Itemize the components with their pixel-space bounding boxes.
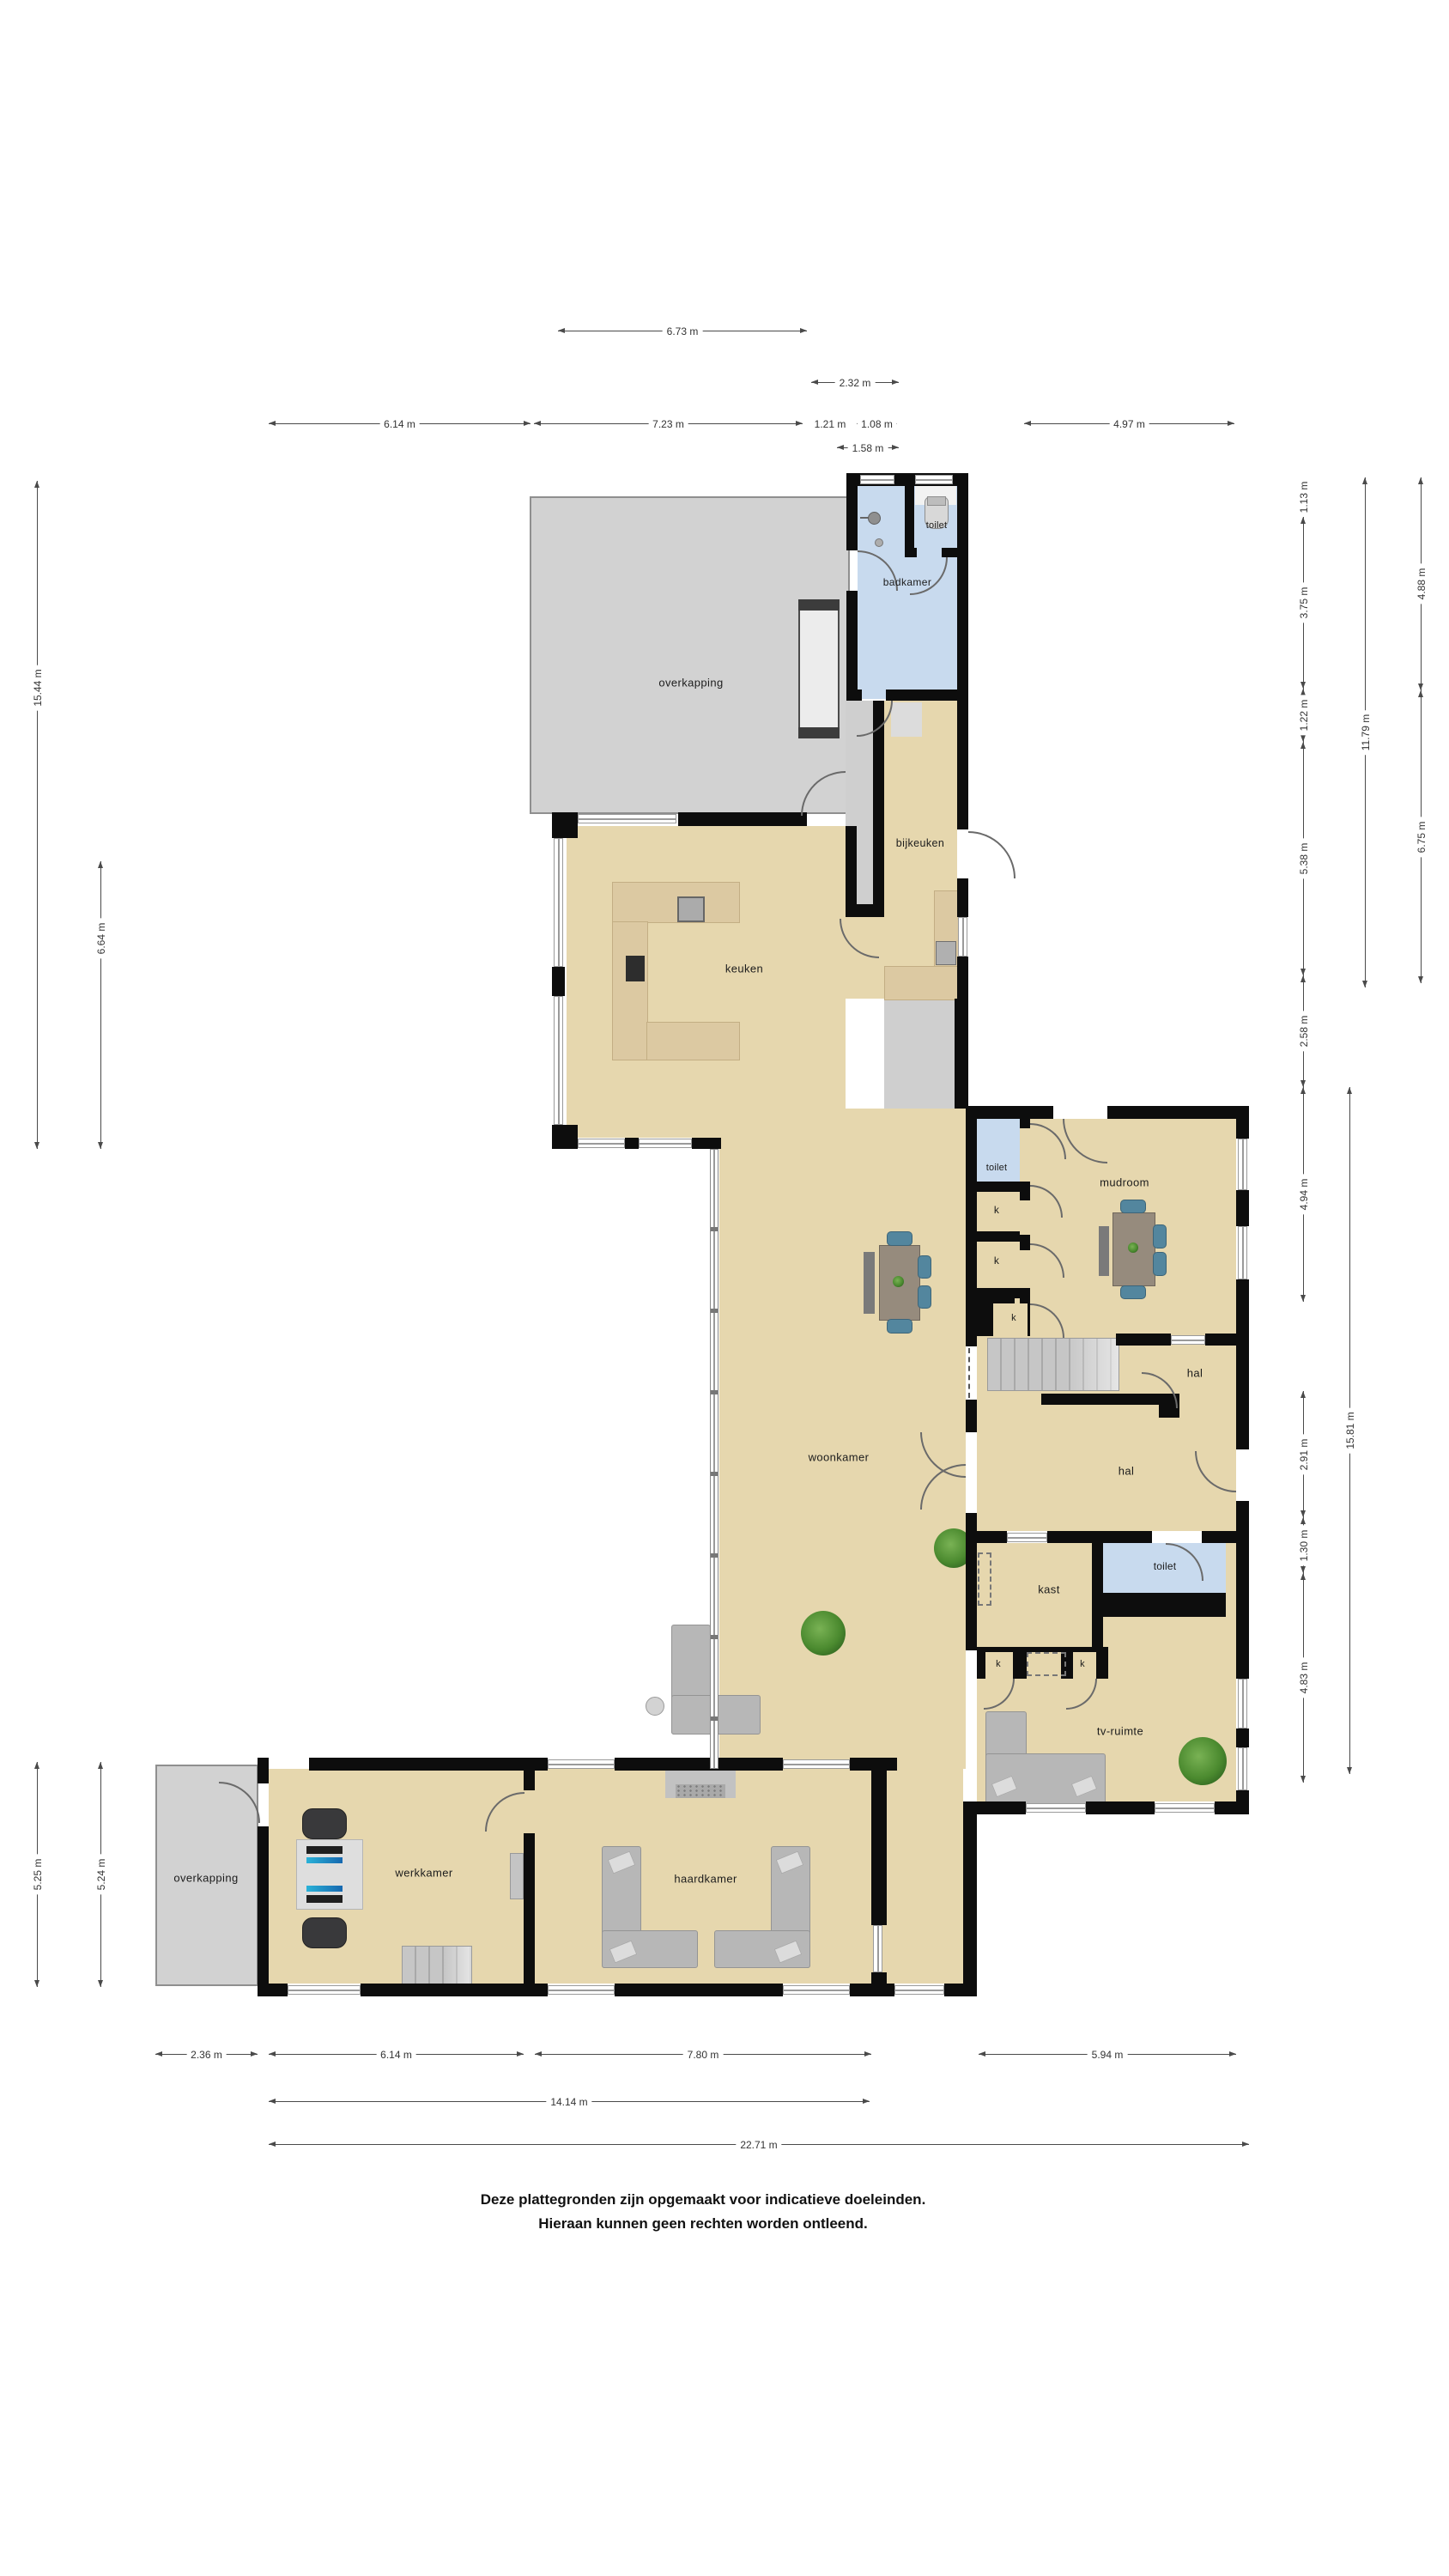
room-label-tv-ruimte: tv-ruimte	[1097, 1725, 1143, 1738]
dim-right-113: 1.13 m	[1303, 477, 1304, 517]
window	[548, 1985, 615, 1995]
window	[1171, 1335, 1205, 1345]
gray-block-east-of-kitchen	[884, 999, 955, 1109]
kitchen-living-bridge	[846, 1109, 966, 1143]
window	[554, 838, 563, 967]
dim-right-494: 4.94 m	[1303, 1087, 1304, 1302]
dim-bottom-236: 2.36 m	[155, 2054, 258, 2055]
room-label-woonkamer: woonkamer	[809, 1451, 870, 1464]
dim-bottom-780: 7.80 m	[535, 2054, 871, 2055]
window	[915, 475, 953, 484]
dining-chair	[918, 1285, 931, 1309]
room-label-werkkamer: werkkamer	[395, 1867, 452, 1880]
kitchen-sink	[677, 896, 705, 922]
toilet-fixture-top-tank	[927, 496, 946, 506]
table-plant	[893, 1276, 904, 1287]
side-table	[646, 1697, 664, 1716]
dining-bench	[864, 1252, 875, 1314]
kitchen-counter-left	[612, 921, 648, 1060]
closet-label: k	[994, 1255, 999, 1267]
disclaimer-line-1: Deze plattegronden zijn opgemaakt voor i…	[347, 2188, 1059, 2212]
dining-chair	[887, 1319, 912, 1334]
window	[873, 1925, 882, 1972]
closet-label: k	[996, 1659, 1001, 1669]
dim-top-723: 7.23 m	[534, 423, 803, 424]
terrace-table-end	[798, 727, 840, 738]
window	[639, 1139, 692, 1148]
glass-wall	[710, 1149, 718, 1769]
tvroom-plant	[1179, 1737, 1227, 1785]
door-arc	[968, 831, 1016, 878]
room-label-mudroom: mudroom	[1100, 1176, 1149, 1189]
window	[288, 1985, 361, 1995]
dim-right-488: 4.88 m	[1421, 477, 1422, 690]
window	[860, 475, 894, 484]
monitor	[306, 1895, 343, 1903]
mudroom-bench	[1099, 1226, 1109, 1276]
dim-right-483: 4.83 m	[1303, 1573, 1304, 1783]
room-label-toilet-top: toilet	[926, 520, 947, 531]
dim-right-122: 1.22 m	[1303, 689, 1304, 742]
dining-chair	[918, 1255, 931, 1279]
room-label-badkamer: badkamer	[883, 576, 932, 588]
shower-head	[868, 512, 881, 525]
terrace-table	[798, 599, 840, 738]
room-label-toilet-mid: toilet	[986, 1163, 1007, 1173]
scullery-counter-bottom	[884, 966, 959, 1000]
window	[1155, 1803, 1215, 1813]
mudroom-chair	[1153, 1252, 1167, 1276]
room-label-hal-upper: hal	[1187, 1367, 1203, 1380]
mudroom-chair	[1153, 1224, 1167, 1249]
kitchen-counter-bottom	[646, 1022, 740, 1060]
desk-chair	[302, 1917, 347, 1948]
floorplan-page: 6.73 m 2.32 m 6.14 m 7.23 m 1.21 m 1.08 …	[0, 0, 1449, 2576]
kitchen-fill	[567, 826, 846, 1138]
window	[578, 814, 676, 823]
dim-top-673: 6.73 m	[558, 331, 807, 331]
dim-right-291: 2.91 m	[1303, 1391, 1304, 1517]
dim-top-232: 2.32 m	[811, 382, 899, 383]
scullery-cabinet	[891, 702, 922, 737]
mudroom-table-plant	[1128, 1242, 1138, 1253]
monitor-screen	[306, 1886, 343, 1892]
dim-bottom-594: 5.94 m	[979, 2054, 1236, 2055]
room-label-toilet-down: toilet	[1154, 1560, 1177, 1572]
toilet-mid-fill	[977, 1119, 1020, 1189]
dim-right-130: 1.30 m	[1303, 1517, 1304, 1573]
dashed-opening	[968, 1348, 970, 1398]
dim-top-121: 1.21 m	[810, 423, 850, 424]
dim-left-525: 5.25 m	[37, 1762, 38, 1987]
dim-right-1179: 11.79 m	[1365, 477, 1366, 987]
window	[958, 917, 967, 957]
study-shelf	[510, 1853, 524, 1899]
room-label-bijkeuken: bijkeuken	[896, 837, 944, 849]
dim-left-524: 5.24 m	[100, 1762, 101, 1987]
dashed-wardrobe	[978, 1552, 991, 1606]
shower-knob	[875, 538, 883, 547]
room-label-overkapping-top: overkapping	[658, 677, 723, 690]
dashed-closet	[1027, 1652, 1066, 1676]
window	[1238, 1679, 1247, 1728]
dim-top-158: 1.58 m	[837, 447, 899, 448]
mudroom-chair	[1120, 1200, 1146, 1213]
scullery-sink	[936, 941, 956, 965]
window	[554, 996, 563, 1125]
dim-bottom-1414: 14.14 m	[269, 2101, 870, 2102]
window	[1238, 1747, 1247, 1790]
monitor	[306, 1846, 343, 1854]
kitchen-counter-top	[612, 882, 740, 923]
room-label-haardkamer: haardkamer	[674, 1873, 737, 1886]
monitor-screen	[306, 1857, 343, 1863]
room-label-keuken: keuken	[725, 963, 763, 975]
dim-right-375: 3.75 m	[1303, 517, 1304, 689]
disclaimer-text: Deze plattegronden zijn opgemaakt voor i…	[347, 2188, 1059, 2236]
closet-label: k	[1080, 1659, 1085, 1669]
room-label-hal: hal	[1119, 1465, 1135, 1478]
terrace-table-end	[798, 599, 840, 611]
window	[783, 1759, 850, 1769]
closet-label: k	[1011, 1313, 1016, 1323]
study-stairs	[402, 1946, 472, 1987]
dim-left-1544: 15.44 m	[37, 481, 38, 1149]
fireplace-hearth	[676, 1784, 725, 1798]
window	[1026, 1803, 1086, 1813]
dining-chair	[887, 1231, 912, 1246]
kitchen-cooktop	[626, 956, 645, 981]
dim-top-108: 1.08 m	[857, 423, 897, 424]
dim-right-1581: 15.81 m	[1349, 1087, 1350, 1774]
window	[783, 1985, 850, 1995]
hall-stairs	[987, 1338, 1119, 1391]
dim-left-664: 6.64 m	[100, 861, 101, 1149]
window	[578, 1139, 625, 1148]
room-label-overkapping-bottom: overkapping	[173, 1872, 238, 1885]
dim-top-497: 4.97 m	[1024, 423, 1234, 424]
dim-right-538: 5.38 m	[1303, 742, 1304, 975]
window	[1238, 1226, 1247, 1279]
desk-chair	[302, 1808, 347, 1839]
closet-label: k	[994, 1204, 999, 1216]
window	[1007, 1533, 1047, 1542]
livingroom-plant	[801, 1611, 846, 1656]
dim-bottom-614: 6.14 m	[269, 2054, 524, 2055]
disclaimer-line-2: Hieraan kunnen geen rechten worden ontle…	[347, 2212, 1059, 2236]
dim-right-675: 6.75 m	[1421, 690, 1422, 983]
mudroom-chair	[1120, 1285, 1146, 1299]
room-label-kast: kast	[1038, 1583, 1059, 1596]
window	[1238, 1139, 1247, 1190]
dim-bottom-2271: 22.71 m	[269, 2144, 1249, 2145]
dim-right-258: 2.58 m	[1303, 975, 1304, 1087]
window	[548, 1759, 615, 1769]
window	[894, 1985, 944, 1995]
dim-top-614: 6.14 m	[269, 423, 530, 424]
